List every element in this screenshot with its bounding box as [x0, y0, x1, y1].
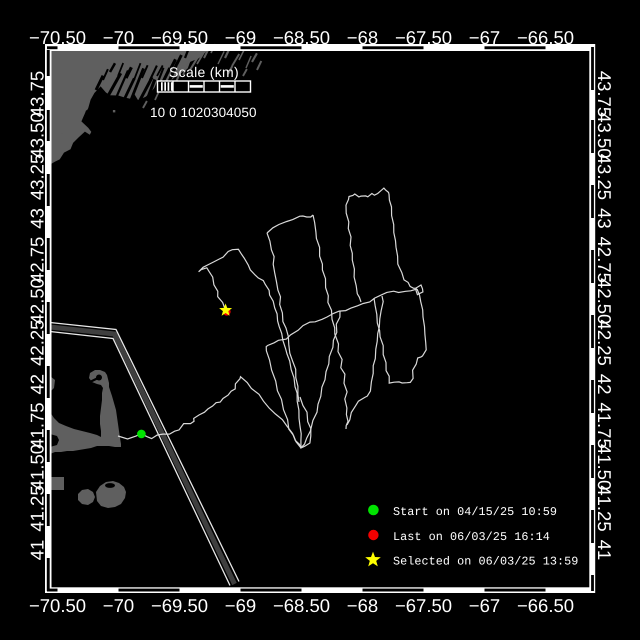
- svg-text:−67: −67: [469, 27, 500, 48]
- svg-text:41.50: 41.50: [594, 444, 615, 490]
- svg-text:43.75: 43.75: [594, 71, 615, 117]
- svg-text:Last on 06/03/25 16:14: Last on 06/03/25 16:14: [393, 530, 550, 544]
- svg-text:Scale (km): Scale (km): [169, 64, 239, 80]
- svg-text:−69.50: −69.50: [151, 595, 208, 616]
- svg-text:42.75: 42.75: [594, 237, 615, 283]
- svg-text:41.50: 41.50: [27, 444, 48, 490]
- svg-text:−67.50: −67.50: [395, 27, 452, 48]
- svg-text:42.50: 42.50: [27, 278, 48, 324]
- svg-text:10 0 1020304050: 10 0 1020304050: [150, 105, 257, 120]
- svg-text:41.75: 41.75: [594, 402, 615, 448]
- svg-text:−66.50: −66.50: [517, 595, 574, 616]
- svg-text:42.25: 42.25: [594, 320, 615, 366]
- svg-text:42: 42: [594, 374, 615, 395]
- svg-text:−68.50: −68.50: [273, 595, 330, 616]
- svg-text:−68.50: −68.50: [273, 27, 330, 48]
- svg-text:−69.50: −69.50: [151, 27, 208, 48]
- svg-text:−70: −70: [103, 27, 134, 48]
- svg-text:43.50: 43.50: [27, 112, 48, 158]
- svg-text:41: 41: [27, 540, 48, 561]
- svg-text:43.75: 43.75: [27, 71, 48, 117]
- svg-text:43.25: 43.25: [594, 154, 615, 200]
- svg-text:−66.50: −66.50: [517, 27, 574, 48]
- svg-text:−68: −68: [347, 27, 378, 48]
- svg-text:−70.50: −70.50: [29, 595, 86, 616]
- svg-text:41.25: 41.25: [594, 485, 615, 531]
- svg-text:43: 43: [27, 208, 48, 229]
- svg-text:42.25: 42.25: [27, 320, 48, 366]
- svg-text:−70.50: −70.50: [29, 27, 86, 48]
- svg-text:−67.50: −67.50: [395, 595, 452, 616]
- svg-text:41.75: 41.75: [27, 402, 48, 448]
- svg-text:−69: −69: [225, 595, 256, 616]
- svg-text:−67: −67: [469, 595, 500, 616]
- svg-text:43: 43: [594, 208, 615, 229]
- svg-text:43.25: 43.25: [27, 154, 48, 200]
- svg-text:41.25: 41.25: [27, 485, 48, 531]
- svg-text:42.50: 42.50: [594, 278, 615, 324]
- svg-text:Start on 04/15/25 10:59: Start on 04/15/25 10:59: [393, 505, 557, 519]
- svg-text:42.75: 42.75: [27, 237, 48, 283]
- svg-text:−69: −69: [225, 27, 256, 48]
- svg-text:43.50: 43.50: [594, 112, 615, 158]
- svg-text:−70: −70: [103, 595, 134, 616]
- svg-text:−68: −68: [347, 595, 378, 616]
- svg-text:42: 42: [27, 374, 48, 395]
- svg-text:41: 41: [594, 540, 615, 561]
- svg-text:Selected on 06/03/25 13:59: Selected on 06/03/25 13:59: [393, 555, 578, 569]
